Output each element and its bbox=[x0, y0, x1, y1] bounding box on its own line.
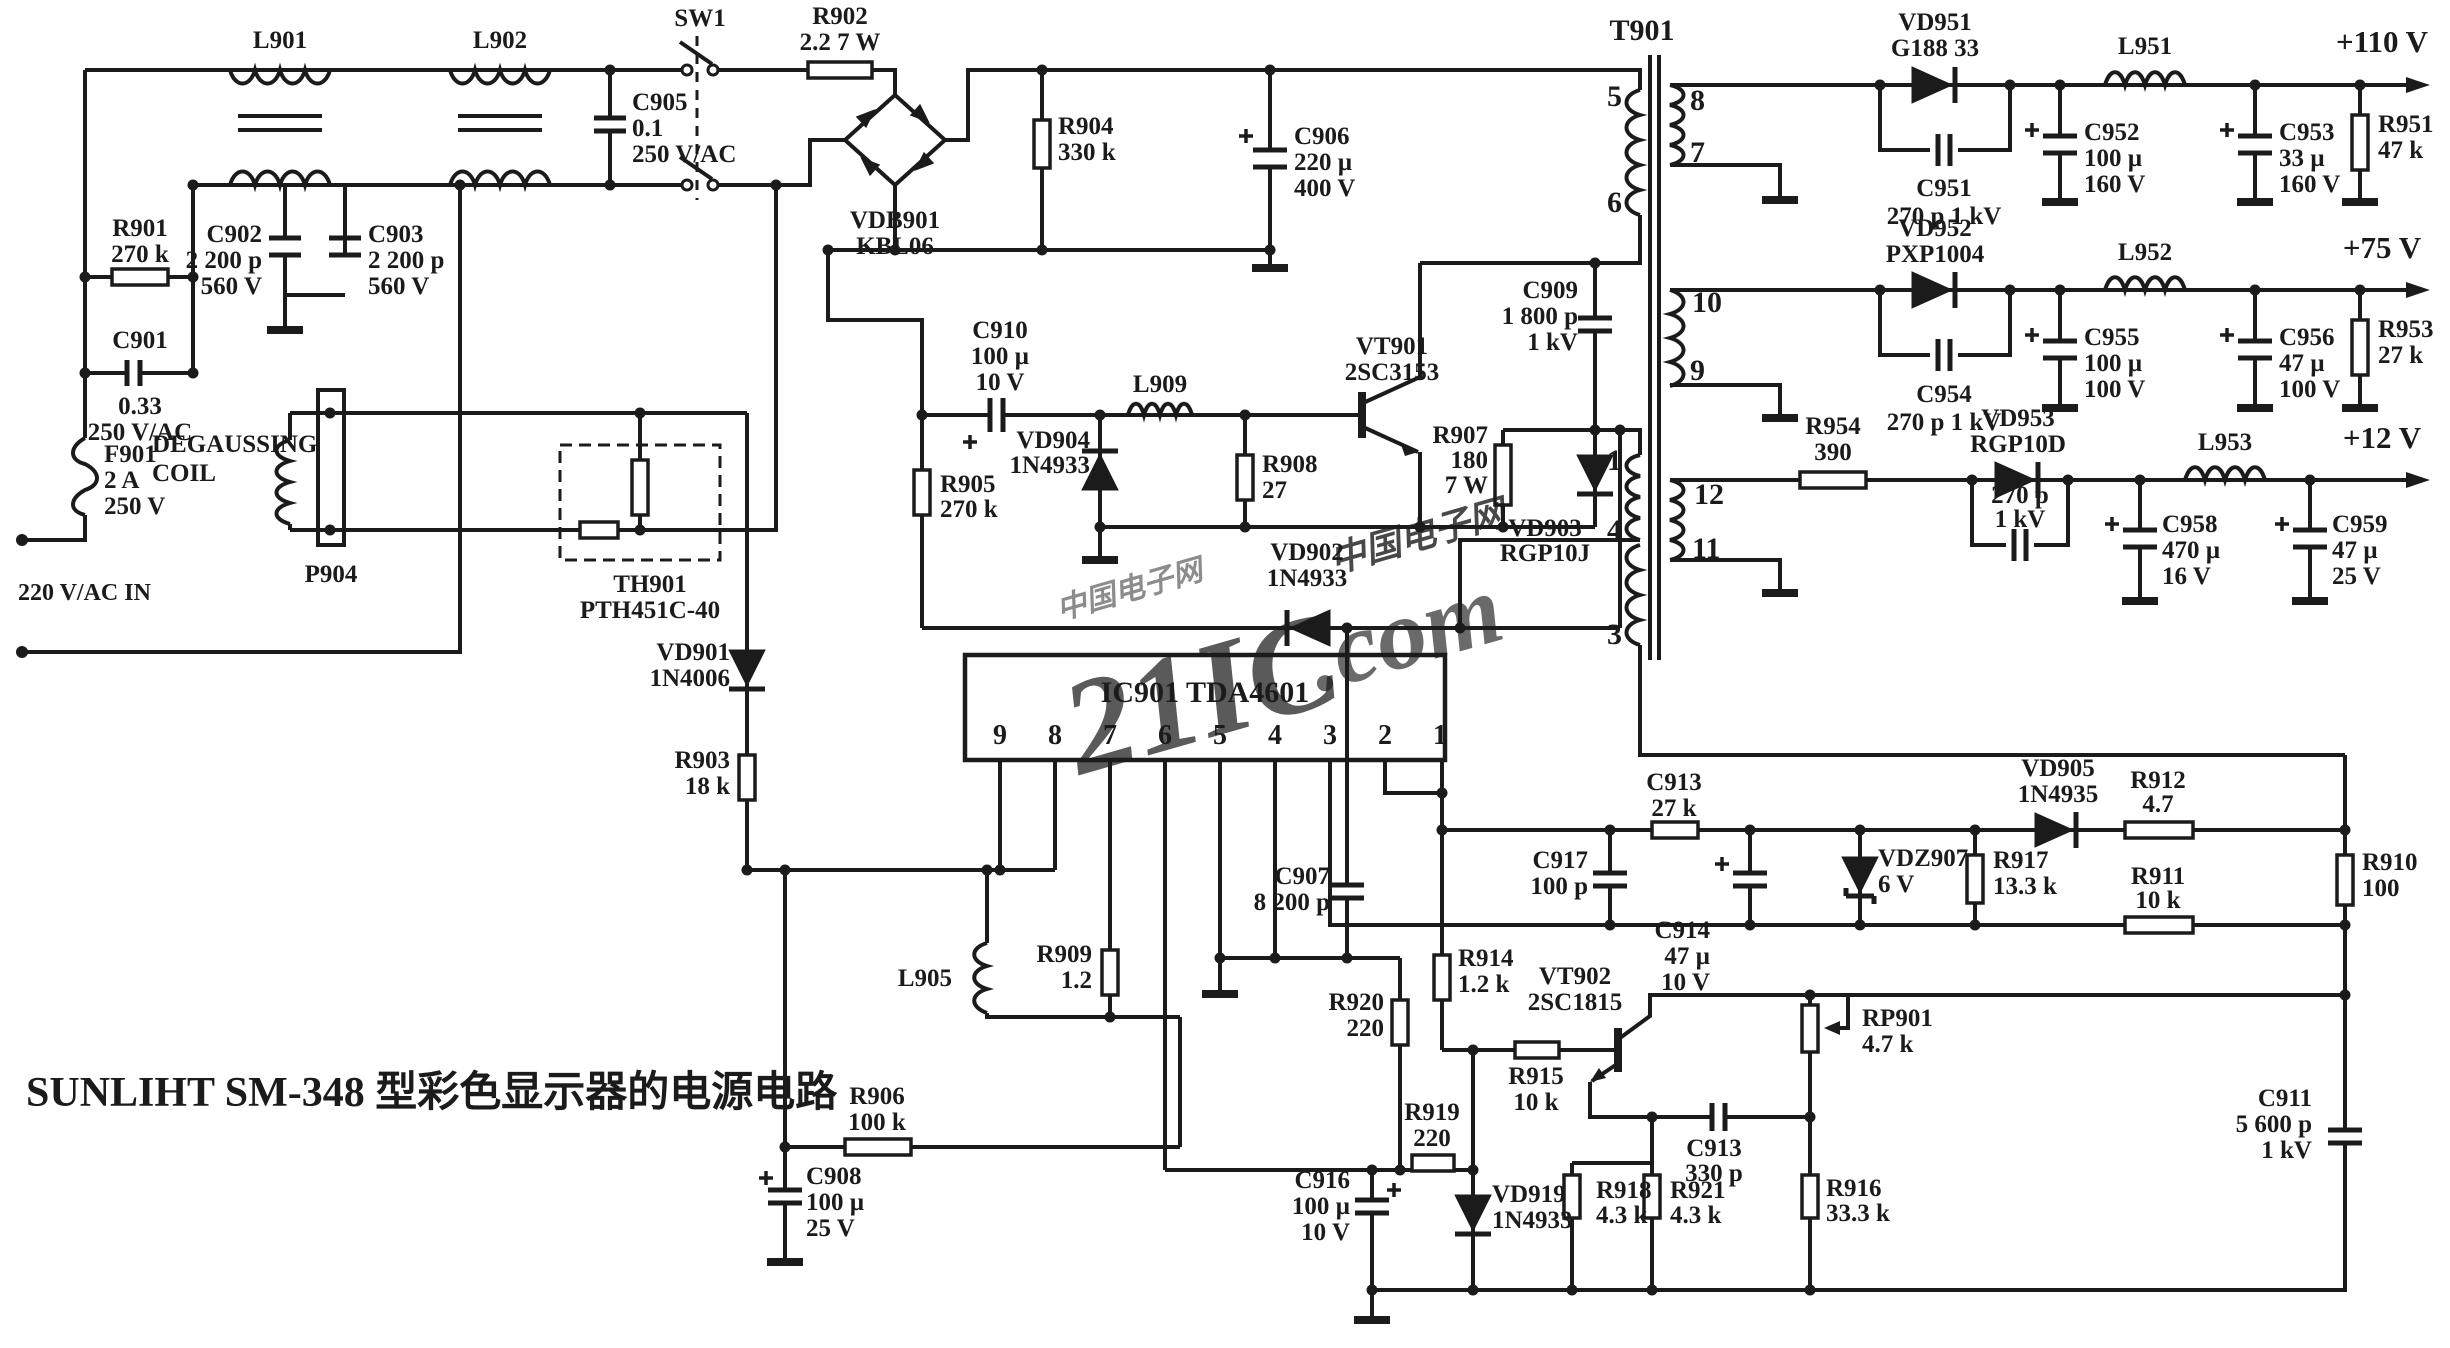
resistor-r905 bbox=[914, 470, 930, 515]
resistor-r908 bbox=[1237, 455, 1253, 500]
t901-primary bbox=[1627, 90, 1641, 215]
terminal-ac-1 bbox=[16, 534, 28, 546]
label-degaussing-coil: DEGAUSSINGCOIL bbox=[152, 431, 317, 487]
label-c909: C9091 800 p1 kV bbox=[1502, 277, 1578, 356]
cap-c953 bbox=[2238, 136, 2272, 153]
cap-c905 bbox=[594, 118, 626, 131]
label-r909: R9091.2 bbox=[1036, 941, 1092, 994]
ic-pin-9: 9 bbox=[993, 720, 1007, 751]
label-r918: R9184.3 k bbox=[1596, 1177, 1652, 1229]
rp901-wiper-arrow bbox=[1824, 1021, 1840, 1035]
label-out-110v: +110 V bbox=[2336, 24, 2429, 59]
wire-r901-c901 bbox=[85, 277, 193, 373]
transformer-t901-core bbox=[1650, 55, 1659, 660]
resistor-r919 bbox=[1412, 1155, 1454, 1171]
cap-c901 bbox=[127, 360, 140, 386]
plus-c958 bbox=[2105, 517, 2119, 531]
label-c959: C95947 µ25 V bbox=[2332, 511, 2388, 590]
schematic-drawing: L901 L902 C9050.1250 V/AC SW1 R9022.2 7 … bbox=[0, 0, 2450, 1348]
cap-c958 bbox=[2123, 530, 2157, 547]
label-c908: C908100 µ25 V bbox=[806, 1163, 864, 1242]
resistor-r912 bbox=[2125, 822, 2193, 838]
label-c958: C958470 µ16 V bbox=[2162, 511, 2220, 590]
resistor-r951 bbox=[2352, 115, 2368, 170]
label-c906: C906220 µ400 V bbox=[1294, 123, 1355, 202]
resistor-r902 bbox=[808, 62, 872, 78]
label-c910: C910100 µ10 V bbox=[971, 317, 1029, 396]
resistor-r910 bbox=[2337, 855, 2353, 905]
label-r908: R90827 bbox=[1262, 451, 1318, 504]
t901-pin-11: 11 bbox=[1692, 532, 1720, 565]
plus-c914 bbox=[1715, 857, 1729, 871]
resistor-r911 bbox=[2125, 917, 2193, 933]
label-vt902: VT9022SC1815 bbox=[1528, 963, 1622, 1016]
terminal-ac-2 bbox=[16, 646, 28, 658]
cap-c916 bbox=[1355, 1200, 1389, 1213]
ic-pin-8: 8 bbox=[1048, 720, 1062, 751]
label-r914: R9141.2 k bbox=[1458, 945, 1514, 998]
thermistor-th901 bbox=[632, 460, 648, 515]
label-ac-input: 220 V/AC IN bbox=[18, 580, 152, 606]
label-c905: C9050.1250 V/AC bbox=[632, 89, 736, 168]
label-r902: R9022.2 7 W bbox=[800, 3, 881, 56]
t901-pin-4: 4 bbox=[1607, 514, 1622, 547]
bridge-vdb901 bbox=[845, 95, 945, 185]
resistor-r901 bbox=[112, 269, 168, 285]
label-t901: T901 bbox=[1609, 14, 1674, 47]
diode-vd901 bbox=[729, 650, 765, 689]
cap-c955 bbox=[2043, 341, 2077, 358]
resistor-r954 bbox=[1800, 472, 1866, 488]
label-r915: R91510 k bbox=[1508, 1063, 1564, 1116]
t901-sec-110 bbox=[1670, 85, 1684, 165]
label-l952: L952 bbox=[2118, 239, 2172, 266]
arrow-75v bbox=[2406, 282, 2430, 298]
resistor-r909 bbox=[1102, 950, 1118, 995]
label-l902: L902 bbox=[473, 27, 527, 54]
resistor-r917 bbox=[1967, 855, 1983, 903]
resistor-th901-series bbox=[580, 522, 618, 538]
resistor-r953 bbox=[2352, 320, 2368, 375]
label-out-75v: +75 V bbox=[2343, 230, 2422, 265]
label-r917: R91713.3 k bbox=[1993, 847, 2057, 900]
cap-c951 bbox=[1938, 134, 1950, 166]
label-r911: R91110 k bbox=[2131, 863, 2185, 914]
label-c913a: C91327 k bbox=[1646, 769, 1702, 822]
label-r912: R9124.7 bbox=[2130, 767, 2186, 818]
label-c916: C916100 µ10 V bbox=[1292, 1167, 1350, 1246]
cap-c957 bbox=[2014, 529, 2026, 561]
ic-pin-1: 1 bbox=[1433, 720, 1447, 751]
cap-c908 bbox=[768, 1190, 802, 1203]
t901-pin-9: 9 bbox=[1690, 354, 1705, 387]
label-c913b: C913330 p bbox=[1685, 1135, 1743, 1187]
label-vd904: VD9041N4933 bbox=[1009, 427, 1090, 479]
diode-vd919 bbox=[1455, 1195, 1491, 1234]
label-r951: R95147 k bbox=[2378, 111, 2434, 164]
label-vt901: VT9012SC3153 bbox=[1345, 333, 1439, 386]
label-p904: P904 bbox=[305, 561, 358, 588]
label-th901: TH901PTH451C-40 bbox=[580, 571, 720, 624]
t901-pin-3: 3 bbox=[1607, 618, 1622, 651]
wire-vt902 bbox=[1165, 995, 2345, 1316]
switch-sw1 bbox=[680, 36, 718, 200]
label-r953: R95327 k bbox=[2378, 316, 2434, 369]
wire-bridge bbox=[828, 70, 1640, 415]
t901-pin-7: 7 bbox=[1690, 136, 1705, 169]
cap-c959 bbox=[2293, 530, 2327, 547]
cap-c952 bbox=[2043, 136, 2077, 153]
diode-vd951 bbox=[1912, 67, 1955, 103]
label-r901: R901270 k bbox=[111, 215, 169, 268]
label-r903: R90318 k bbox=[674, 747, 730, 800]
label-c917: C917100 p bbox=[1530, 847, 1588, 900]
choke-l901 bbox=[230, 70, 330, 185]
ic-pin-2: 2 bbox=[1378, 720, 1392, 751]
label-r919: R919220 bbox=[1404, 1099, 1460, 1152]
cap-c906 bbox=[1253, 150, 1287, 167]
plus-c952 bbox=[2025, 123, 2039, 137]
label-r954: R954390 bbox=[1805, 413, 1861, 466]
zener-vdz907 bbox=[1842, 857, 1878, 904]
label-vd951: VD951G188 33 bbox=[1891, 9, 1979, 62]
t901-pin-8: 8 bbox=[1690, 84, 1705, 117]
label-vdb901: VDB901KBL06 bbox=[850, 207, 940, 260]
label-out-12v: +12 V bbox=[2343, 420, 2422, 455]
diode-vd905 bbox=[2035, 812, 2076, 848]
cap-c907 bbox=[1330, 885, 1364, 898]
label-vd919: VD9191N4933 bbox=[1492, 1181, 1573, 1234]
t901-pin-10: 10 bbox=[1692, 286, 1722, 319]
label-c957: 270 p1 kV bbox=[1991, 482, 2049, 533]
label-l901: L901 bbox=[253, 27, 307, 54]
plus-c906 bbox=[1239, 129, 1253, 143]
watermark-small: 中国电子网 bbox=[1053, 553, 1210, 627]
label-r904: R904330 k bbox=[1058, 113, 1116, 166]
t901-pin-12: 12 bbox=[1694, 478, 1724, 511]
resistor-r916 bbox=[1802, 1175, 1818, 1218]
cap-c914 bbox=[1733, 873, 1767, 886]
label-r910: R910100 bbox=[2362, 849, 2418, 902]
label-sw1: SW1 bbox=[674, 5, 725, 32]
label-c901-name: C901 bbox=[112, 327, 168, 354]
cap-c956 bbox=[2238, 341, 2272, 358]
cap-c909 bbox=[1578, 318, 1612, 331]
label-vd901: VD9011N4006 bbox=[649, 639, 730, 692]
cap-c910 bbox=[990, 398, 1003, 432]
plus-c959 bbox=[2275, 517, 2289, 531]
fuse-f901 bbox=[73, 438, 97, 515]
page-title: SUNLIHT SM-348 型彩色显示器的电源电路 bbox=[26, 1069, 838, 1116]
label-c911: C9115 600 p1 kV bbox=[2236, 1085, 2312, 1164]
label-r920: R920220 bbox=[1328, 989, 1384, 1042]
cap-c917 bbox=[1593, 873, 1627, 886]
label-c902: C9022 200 p560 V bbox=[186, 221, 262, 300]
schematic-page: L901 L902 C9050.1250 V/AC SW1 R9022.2 7 … bbox=[0, 0, 2450, 1348]
plus-c916 bbox=[1387, 1183, 1401, 1197]
cap-c913b bbox=[1712, 1103, 1725, 1131]
choke-l902 bbox=[450, 70, 550, 185]
inductor-l905 bbox=[974, 943, 987, 1013]
watermark-site-name-2: 中国电子网 bbox=[1053, 553, 1210, 627]
resistor-r920 bbox=[1392, 1000, 1408, 1045]
plus-c955 bbox=[2025, 328, 2039, 342]
arrow-110v bbox=[2406, 77, 2430, 93]
plus-c908 bbox=[759, 1171, 773, 1185]
label-c907: C9078 200 p bbox=[1254, 863, 1330, 916]
label-l909: L909 bbox=[1133, 371, 1187, 398]
label-vd905: VD9051N4935 bbox=[2018, 755, 2099, 808]
label-l905: L905 bbox=[898, 965, 952, 992]
label-vdz907: VDZ9076 V bbox=[1878, 845, 1968, 898]
label-l953: L953 bbox=[2198, 429, 2252, 456]
resistor-r914 bbox=[1434, 955, 1450, 1000]
cap-c954 bbox=[1938, 339, 1950, 371]
label-r916: R91633.3 k bbox=[1826, 1175, 1890, 1227]
plus-c953 bbox=[2220, 123, 2234, 137]
t901-pin-6: 6 bbox=[1607, 186, 1622, 219]
label-c903: C9032 200 p560 V bbox=[368, 221, 444, 300]
label-r905: R905270 k bbox=[940, 471, 998, 523]
label-c952: C952100 µ160 V bbox=[2084, 119, 2145, 198]
diode-vd952 bbox=[1912, 272, 1955, 308]
label-vd903: VD903RGP10J bbox=[1500, 515, 1590, 567]
t901-pin-1: 1 bbox=[1607, 444, 1622, 477]
arrow-12v bbox=[2406, 472, 2430, 488]
resistor-c913a bbox=[1652, 822, 1698, 838]
t901-feedback-winding bbox=[1627, 455, 1641, 645]
cap-c902 bbox=[269, 238, 301, 255]
label-c955: C955100 µ100 V bbox=[2084, 324, 2145, 403]
plus-c910 bbox=[963, 435, 977, 449]
label-c956: C95647 µ100 V bbox=[2279, 324, 2340, 403]
plus-c956 bbox=[2220, 328, 2234, 342]
t901-pin-5: 5 bbox=[1607, 80, 1622, 113]
resistor-r903 bbox=[739, 755, 755, 800]
t901-sec-12 bbox=[1670, 480, 1684, 560]
t901-sec-75 bbox=[1670, 290, 1684, 386]
label-rp901: RP9014.7 k bbox=[1862, 1005, 1933, 1058]
resistor-r915 bbox=[1515, 1042, 1559, 1058]
label-l951: L951 bbox=[2118, 33, 2172, 60]
label-r907: R9071807 W bbox=[1432, 422, 1488, 499]
label-c953: C95333 µ160 V bbox=[2279, 119, 2340, 198]
label-r906: R906100 k bbox=[848, 1083, 906, 1136]
resistor-r906 bbox=[845, 1139, 911, 1155]
resistor-r904 bbox=[1034, 120, 1050, 168]
label-c914: C91447 µ10 V bbox=[1654, 917, 1710, 996]
cap-c911 bbox=[2328, 1130, 2362, 1143]
label-vd953: VD953RGP10D bbox=[1970, 405, 2066, 458]
label-vd952: VD952PXP1004 bbox=[1886, 215, 1985, 268]
potentiometer-rp901 bbox=[1802, 1005, 1818, 1052]
